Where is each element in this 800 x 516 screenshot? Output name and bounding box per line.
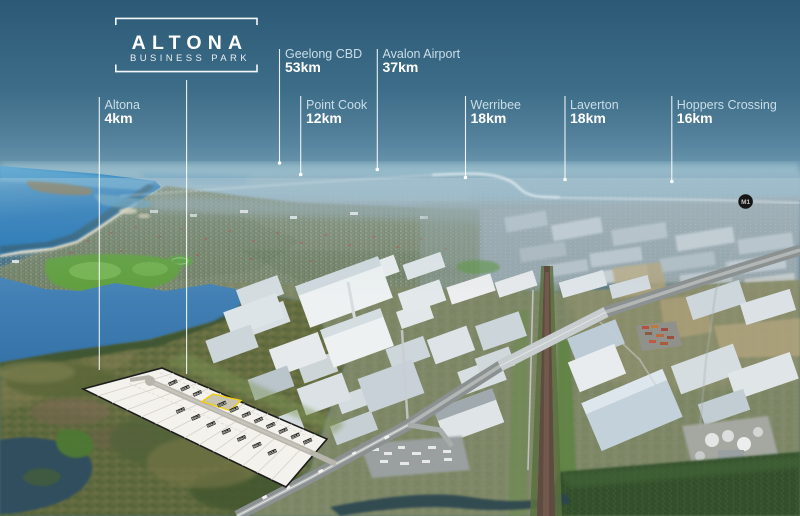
svg-text:18km: 18km (471, 110, 507, 126)
svg-text:18km: 18km (570, 110, 606, 126)
svg-text:ALTONA: ALTONA (132, 32, 249, 54)
svg-text:12km: 12km (306, 110, 342, 126)
svg-text:4km: 4km (105, 110, 133, 126)
svg-text:BUSINESS PARK: BUSINESS PARK (130, 53, 250, 64)
svg-text:37km: 37km (383, 59, 419, 75)
svg-text:16km: 16km (677, 110, 713, 126)
svg-text:53km: 53km (285, 59, 321, 75)
svg-text:M1: M1 (741, 199, 750, 206)
